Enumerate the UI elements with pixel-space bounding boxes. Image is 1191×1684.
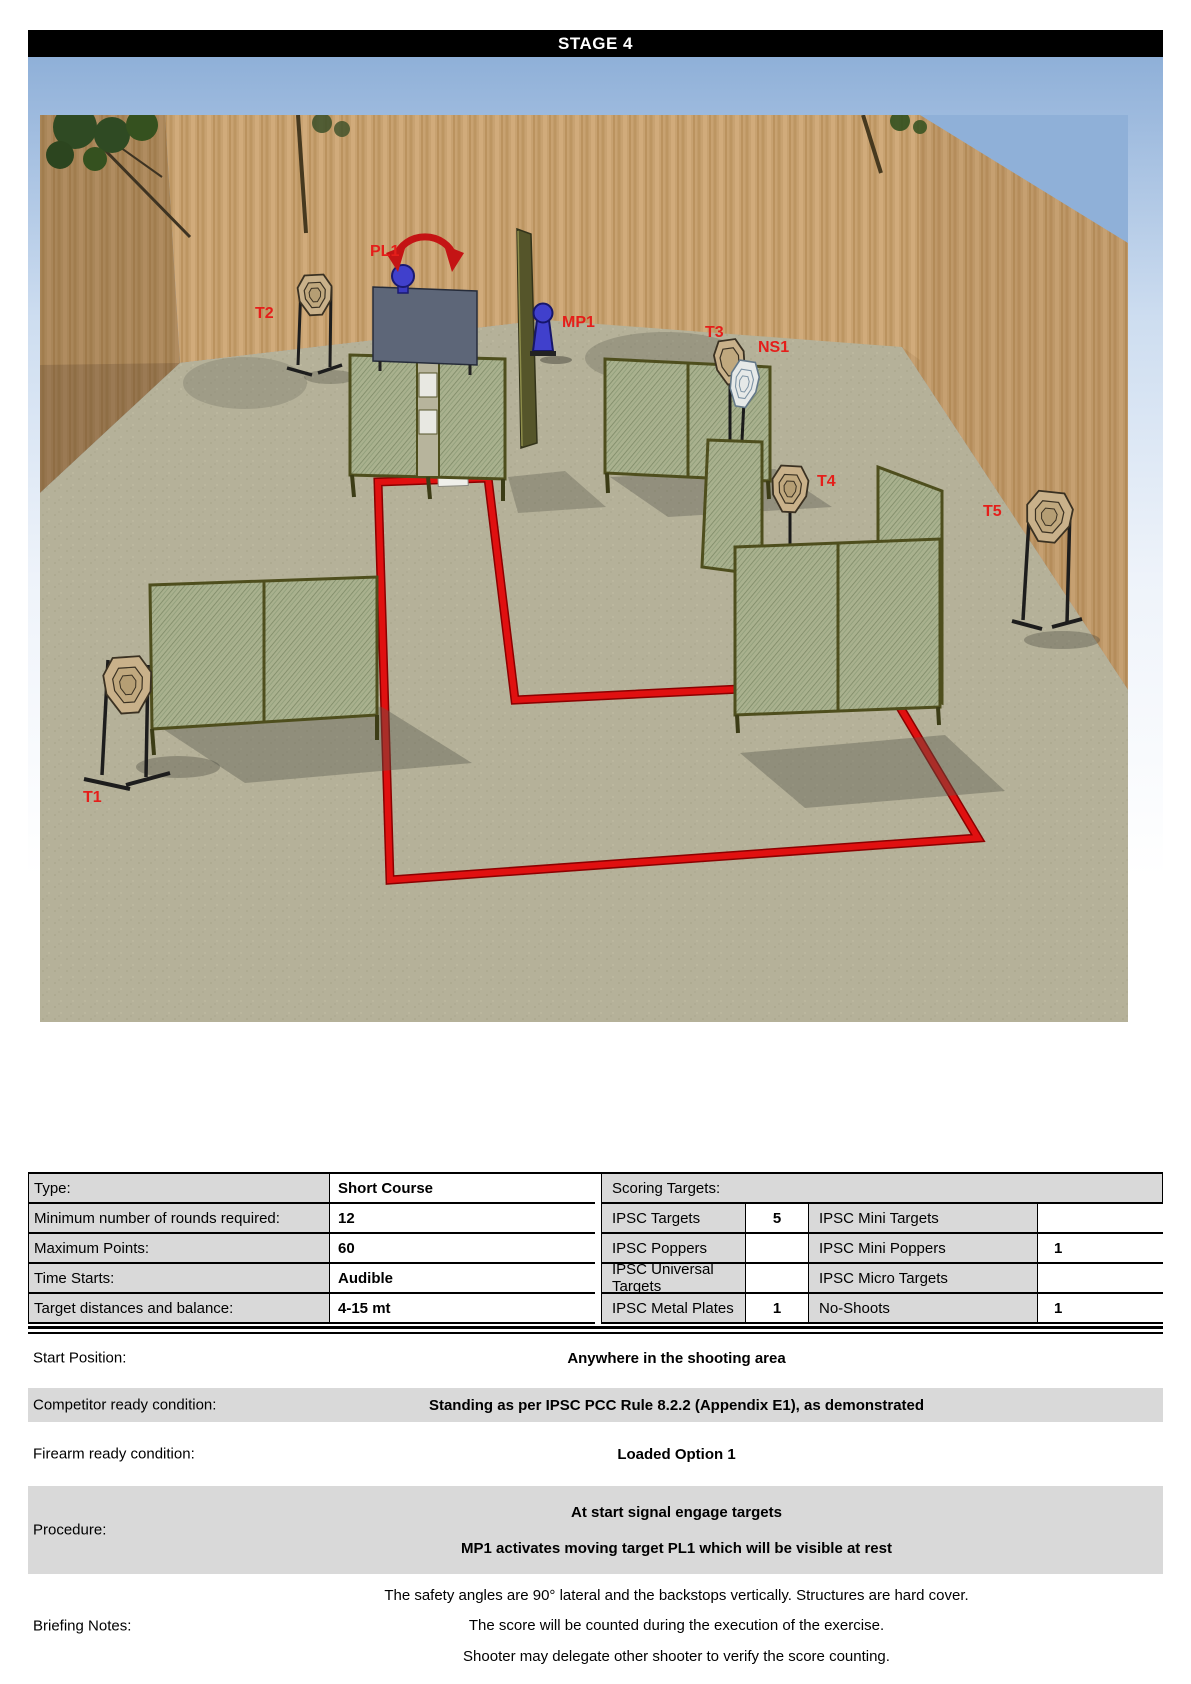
procedure-label: Procedure: [33,1522,106,1539]
stage-info-table: Type: Short Course Scoring Targets: Mini… [28,1172,1163,1324]
label-pl1: PL1 [370,243,399,260]
stage-detail-rows: Start Position: Anywhere in the shooting… [28,1326,1163,1672]
stage-title: STAGE 4 [558,34,633,54]
scoring-name-2: No-Shoots [808,1294,1038,1322]
label-t3: T3 [705,324,724,341]
scoring-count [746,1234,808,1262]
max-points-label: Maximum Points: [28,1234,330,1262]
firearm-ready-row: Firearm ready condition: Loaded Option 1 [28,1436,1163,1472]
briefing-note-line: Shooter may delegate other shooter to ve… [190,1648,1163,1665]
label-t4: T4 [817,473,836,490]
procedure-line: At start signal engage targets [190,1504,1163,1521]
start-position-value: Anywhere in the shooting area [190,1350,1163,1367]
moving-target-barrier [373,287,477,375]
competitor-ready-value: Standing as per IPSC PCC Rule 8.2.2 (App… [190,1397,1163,1414]
label-ns1: NS1 [758,339,789,356]
scoring-count-2: 1 [1038,1294,1163,1322]
start-position-row: Start Position: Anywhere in the shooting… [28,1340,1163,1376]
procedure-line: MP1 activates moving target PL1 which wi… [190,1540,1163,1557]
min-rounds-label: Minimum number of rounds required: [28,1204,330,1232]
scoring-name-2: IPSC Mini Poppers [808,1234,1038,1262]
stage-briefing-document: STAGE 4 [0,0,1191,1684]
scoring-name: IPSC Metal Plates [601,1294,746,1322]
type-label: Type: [28,1174,330,1202]
type-value: Short Course [330,1174,595,1202]
scoring-count: 5 [746,1204,808,1232]
time-starts-label: Time Starts: [28,1264,330,1292]
label-t1: T1 [83,789,102,806]
range-render-area: PL1 T2 MP1 T3 NS1 T4 T5 T1 [28,57,1163,1172]
start-position-label: Start Position: [33,1350,126,1367]
double-divider [28,1326,1163,1334]
stage-title-bar: STAGE 4 [28,30,1163,57]
table-row: Target distances and balance: 4-15 mt IP… [28,1294,1163,1324]
scoring-count-2: 1 [1038,1234,1163,1262]
procedure-row: Procedure: At start signal engage target… [28,1486,1163,1574]
scoring-name-2: IPSC Mini Targets [808,1204,1038,1232]
scoring-name: IPSC Universal Targets [601,1264,746,1292]
briefing-note-line: The safety angles are 90° lateral and th… [190,1587,1163,1604]
label-t2: T2 [255,305,274,322]
competitor-ready-row: Competitor ready condition: Standing as … [28,1388,1163,1422]
label-t5: T5 [983,503,1002,520]
table-row: Time Starts: Audible IPSC Universal Targ… [28,1264,1163,1294]
scoring-count: 1 [746,1294,808,1322]
range-3d-scene: PL1 T2 MP1 T3 NS1 T4 T5 T1 [40,115,1128,1022]
table-row: Maximum Points: 60 IPSC Poppers IPSC Min… [28,1234,1163,1264]
briefing-note-line: The score will be counted during the exe… [190,1617,1163,1634]
briefing-notes-label: Briefing Notes: [33,1618,131,1635]
scoring-count-2 [1038,1264,1163,1292]
scoring-targets-header: Scoring Targets: [601,1174,1163,1202]
briefing-notes-row: Briefing Notes: The safety angles are 90… [28,1580,1163,1672]
firearm-ready-label: Firearm ready condition: [33,1446,195,1463]
scoring-count [746,1264,808,1292]
scoring-name: IPSC Targets [601,1204,746,1232]
competitor-ready-label: Competitor ready condition: [33,1397,216,1414]
distances-label: Target distances and balance: [28,1294,330,1322]
min-rounds-value: 12 [330,1204,595,1232]
table-row: Type: Short Course Scoring Targets: [28,1174,1163,1204]
scoring-name: IPSC Poppers [601,1234,746,1262]
time-starts-value: Audible [330,1264,595,1292]
ground-shadow-left [183,357,307,409]
scoring-count-2 [1038,1204,1163,1232]
distances-value: 4-15 mt [330,1294,595,1322]
table-row: Minimum number of rounds required: 12 IP… [28,1204,1163,1234]
max-points-value: 60 [330,1234,595,1262]
scoring-name-2: IPSC Micro Targets [808,1264,1038,1292]
firearm-ready-value: Loaded Option 1 [190,1446,1163,1463]
label-mp1: MP1 [562,314,595,331]
